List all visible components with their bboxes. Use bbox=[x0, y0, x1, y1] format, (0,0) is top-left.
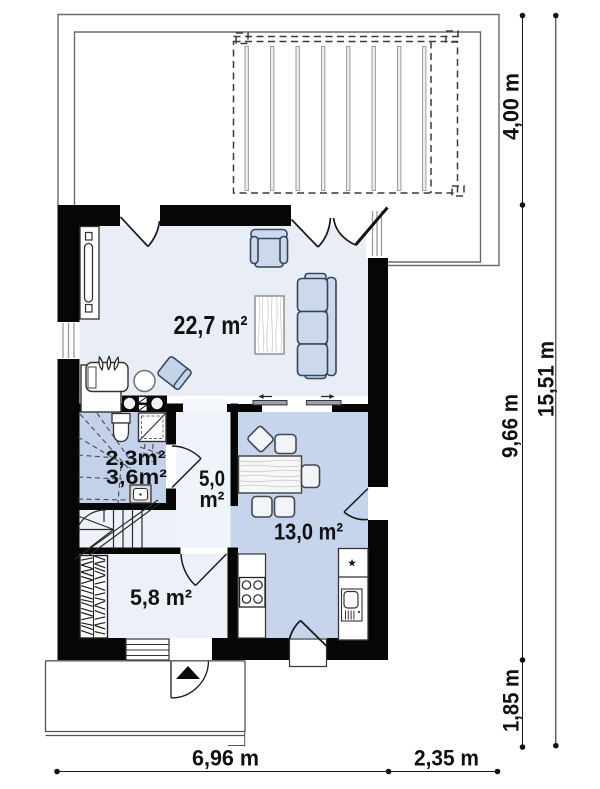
svg-text:3,6m²: 3,6m² bbox=[106, 466, 167, 489]
svg-text:★: ★ bbox=[348, 558, 357, 568]
svg-text:22,7 m²: 22,7 m² bbox=[174, 310, 248, 340]
svg-text:13,0 m²: 13,0 m² bbox=[274, 519, 343, 545]
svg-text:15,51 m: 15,51 m bbox=[534, 341, 559, 417]
svg-text:6,96 m: 6,96 m bbox=[192, 746, 259, 771]
svg-text:4,00 m: 4,00 m bbox=[499, 73, 524, 140]
svg-text:1,85 m: 1,85 m bbox=[499, 669, 524, 732]
svg-text:2,35 m: 2,35 m bbox=[414, 746, 479, 771]
svg-text:9,66 m: 9,66 m bbox=[498, 394, 523, 458]
svg-text:5,8 m²: 5,8 m² bbox=[130, 585, 192, 610]
svg-text:m²: m² bbox=[200, 487, 225, 512]
